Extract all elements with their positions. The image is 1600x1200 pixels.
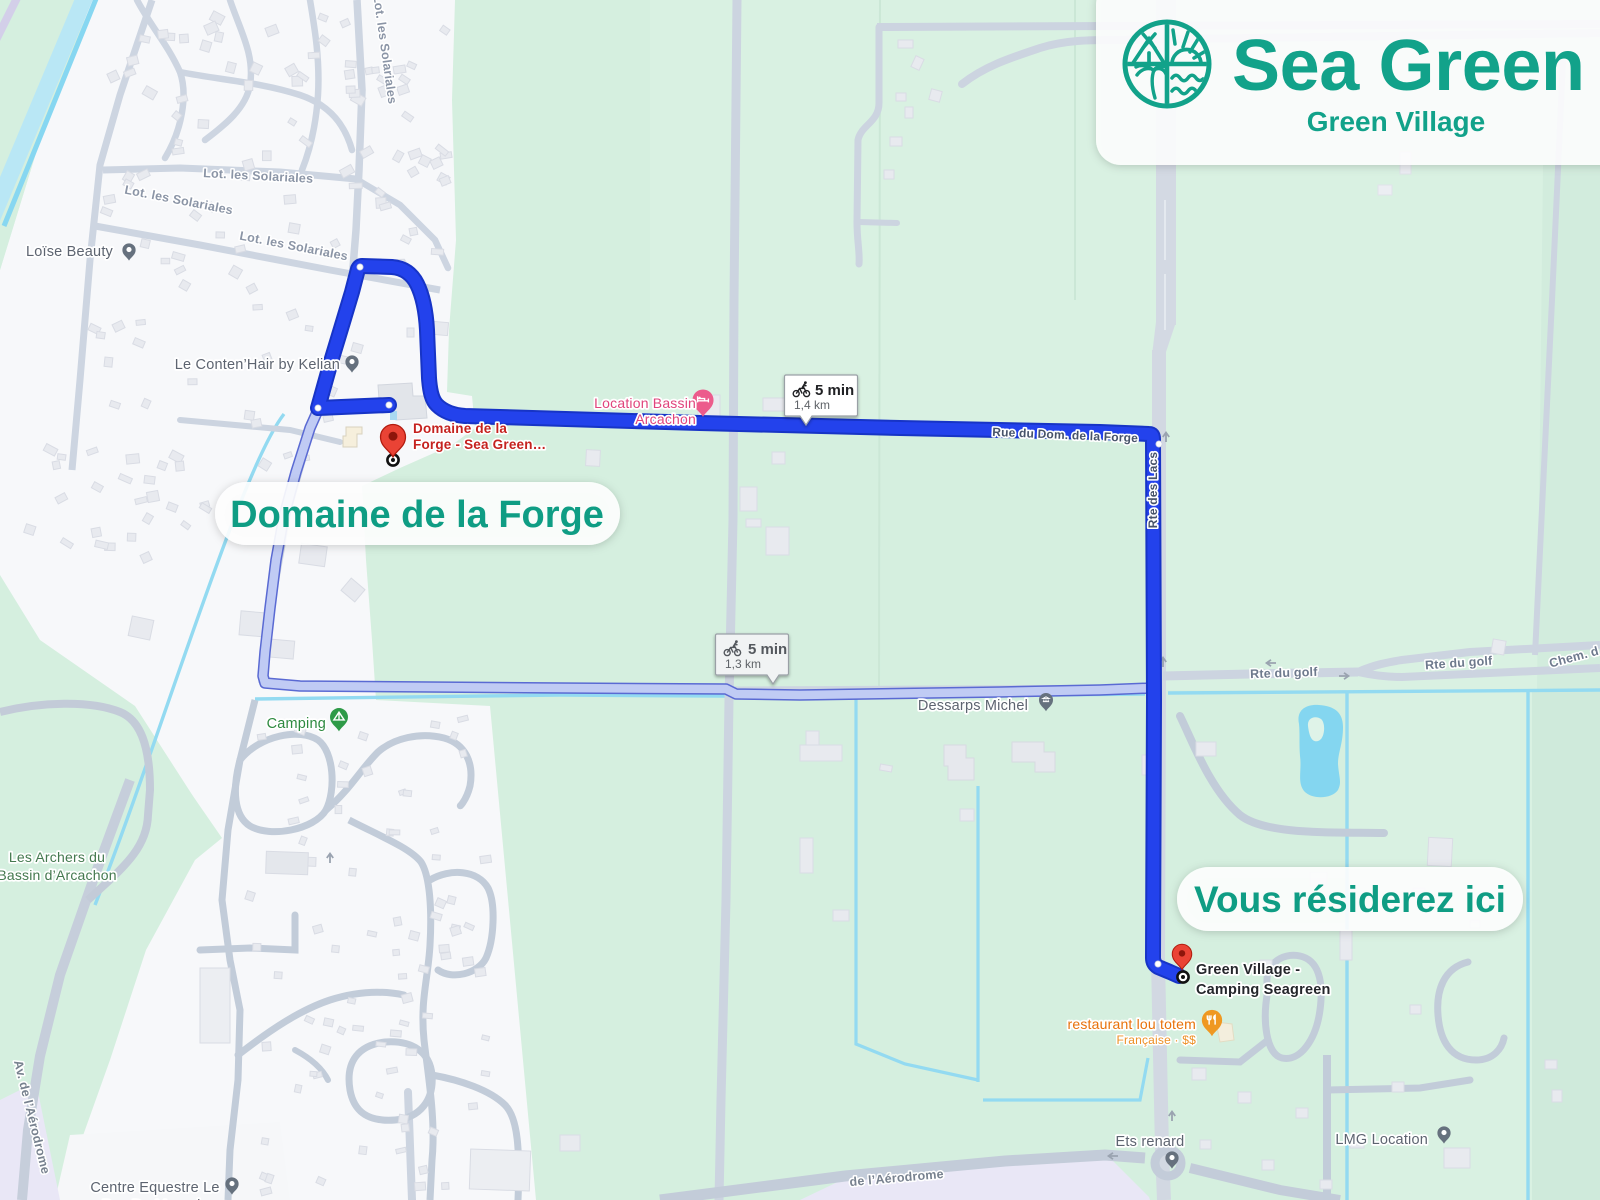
svg-text:Camping: Camping [267,716,326,732]
svg-text:Bassin d’Arcachon: Bassin d’Arcachon [0,867,117,883]
svg-text:Rte des Lacs: Rte des Lacs [1146,452,1160,529]
svg-text:Loïse Beauty: Loïse Beauty [26,244,114,260]
svg-text:Dessarps Michel: Dessarps Michel [918,698,1028,714]
svg-text:1,3 km: 1,3 km [725,657,761,671]
svg-text:Forge - Sea Green…: Forge - Sea Green… [413,437,546,452]
svg-text:5 min: 5 min [748,641,787,658]
svg-text:Green Village: Green Village [1307,106,1485,137]
svg-text:LMG Location: LMG Location [1335,1132,1428,1148]
svg-text:Française · $$: Française · $$ [1117,1033,1197,1047]
svg-text:Arcachon: Arcachon [635,411,696,427]
svg-text:Camping Seagreen: Camping Seagreen [1196,982,1331,998]
svg-text:Domaine de la: Domaine de la [413,421,507,436]
svg-text:Vous résiderez ici: Vous résiderez ici [1194,879,1506,920]
svg-text:5 min: 5 min [815,382,854,399]
svg-text:Les Archers du: Les Archers du [9,849,105,865]
svg-text:Centre Equestre Le: Centre Equestre Le [90,1180,219,1196]
svg-text:Location Bassin: Location Bassin [594,395,696,411]
svg-text:Rte du golf: Rte du golf [1250,665,1319,681]
svg-text:1,4 km: 1,4 km [794,398,830,412]
svg-text:Ets renard: Ets renard [1116,1134,1185,1150]
svg-text:Domaine de la Forge: Domaine de la Forge [230,494,604,536]
svg-text:Green Village -: Green Village - [1196,962,1300,978]
svg-text:Le Conten’Hair by Kelian: Le Conten’Hair by Kelian [175,357,340,373]
svg-text:restaurant lou totem: restaurant lou totem [1067,1016,1196,1032]
svg-text:Sea Green: Sea Green [1232,26,1585,106]
